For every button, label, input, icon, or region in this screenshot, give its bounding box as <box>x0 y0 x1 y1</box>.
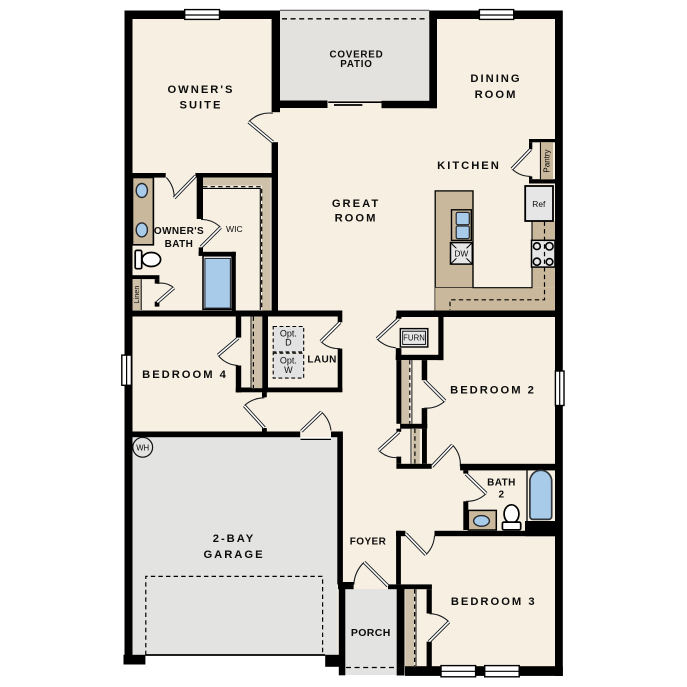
svg-text:ROOM: ROOM <box>475 89 518 101</box>
svg-text:SUITE: SUITE <box>180 100 223 112</box>
svg-text:2-BAY: 2-BAY <box>213 533 256 545</box>
svg-text:2: 2 <box>499 490 505 501</box>
svg-text:PORCH: PORCH <box>351 627 391 639</box>
svg-text:W: W <box>284 365 293 375</box>
svg-text:WH: WH <box>136 443 149 452</box>
svg-text:BATH: BATH <box>165 239 194 250</box>
svg-text:BATH: BATH <box>487 478 516 489</box>
svg-text:GREAT: GREAT <box>332 198 380 210</box>
svg-text:Pantry: Pantry <box>542 149 551 172</box>
svg-text:DINING: DINING <box>470 73 521 85</box>
svg-text:Ref: Ref <box>532 199 546 209</box>
svg-text:Linen: Linen <box>132 286 141 304</box>
svg-text:KITCHEN: KITCHEN <box>437 160 501 172</box>
svg-text:Opt.: Opt. <box>280 355 297 365</box>
svg-text:ROOM: ROOM <box>335 213 378 225</box>
svg-text:D: D <box>285 338 292 348</box>
svg-text:PATIO: PATIO <box>340 59 372 70</box>
svg-text:DW: DW <box>454 249 468 259</box>
svg-text:GARAGE: GARAGE <box>203 549 264 561</box>
svg-text:OWNER'S: OWNER'S <box>154 226 204 237</box>
svg-text:FOYER: FOYER <box>350 537 387 548</box>
svg-text:WIC: WIC <box>226 224 243 234</box>
svg-text:LAUN: LAUN <box>307 355 336 366</box>
svg-text:BEDROOM 2: BEDROOM 2 <box>450 385 536 397</box>
svg-text:BEDROOM 3: BEDROOM 3 <box>451 596 537 608</box>
svg-text:FURN: FURN <box>403 334 425 343</box>
svg-text:BEDROOM 4: BEDROOM 4 <box>142 369 228 381</box>
svg-text:OWNER'S: OWNER'S <box>167 84 234 96</box>
